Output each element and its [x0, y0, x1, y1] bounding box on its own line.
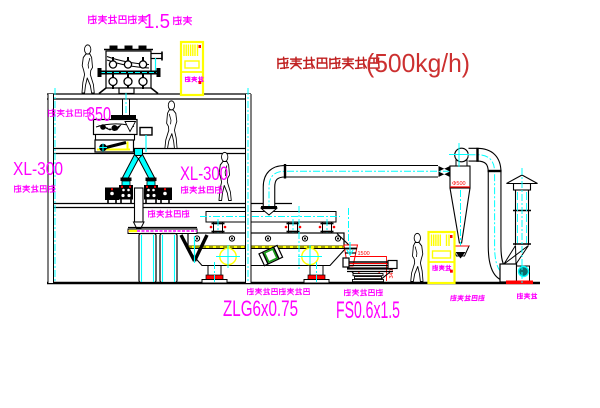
svg-text:1.5: 1.5 [144, 11, 170, 33]
svg-text:Φ500: Φ500 [452, 181, 466, 187]
svg-text:350: 350 [87, 104, 111, 126]
svg-text:(500kg/h): (500kg/h) [366, 48, 470, 78]
svg-text:1500: 1500 [358, 251, 370, 257]
svg-text:XL-300: XL-300 [13, 159, 63, 179]
svg-text:340: 340 [389, 269, 395, 278]
svg-text:XL-300: XL-300 [180, 164, 228, 185]
svg-text:ZLG6x0.75: ZLG6x0.75 [223, 296, 298, 321]
svg-text:FS0.6x1.5: FS0.6x1.5 [336, 297, 400, 324]
